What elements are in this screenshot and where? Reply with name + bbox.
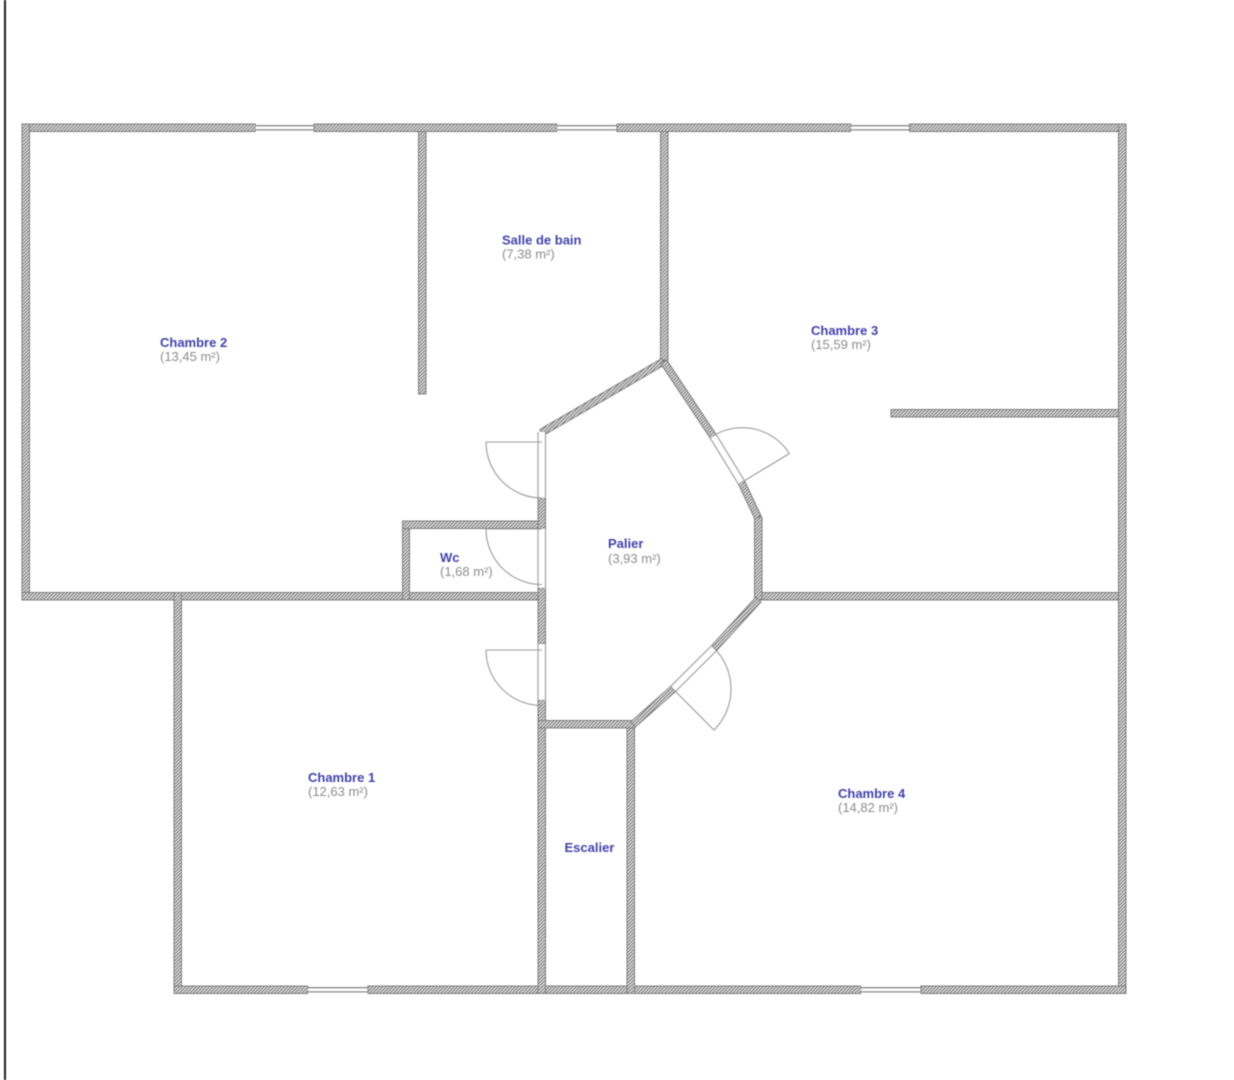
svg-text:Chambre 3: Chambre 3	[811, 323, 878, 338]
svg-text:(12,63 m²): (12,63 m²)	[308, 784, 368, 799]
svg-text:Salle de bain: Salle de bain	[502, 233, 582, 248]
svg-text:Wc: Wc	[440, 550, 460, 565]
svg-text:Chambre 1: Chambre 1	[308, 770, 375, 785]
svg-text:(3,93 m²): (3,93 m²)	[608, 551, 661, 566]
svg-text:Escalier: Escalier	[565, 840, 615, 855]
svg-text:Chambre 2: Chambre 2	[160, 335, 227, 350]
svg-text:(14,82 m²): (14,82 m²)	[838, 800, 898, 815]
svg-text:(7,38 m²): (7,38 m²)	[502, 247, 555, 262]
svg-text:(1,68 m²): (1,68 m²)	[440, 564, 493, 579]
svg-text:Palier: Palier	[608, 536, 643, 551]
svg-text:(13,45 m²): (13,45 m²)	[160, 349, 220, 364]
svg-text:Chambre 4: Chambre 4	[838, 786, 906, 801]
svg-text:(15,59 m²): (15,59 m²)	[811, 337, 871, 352]
